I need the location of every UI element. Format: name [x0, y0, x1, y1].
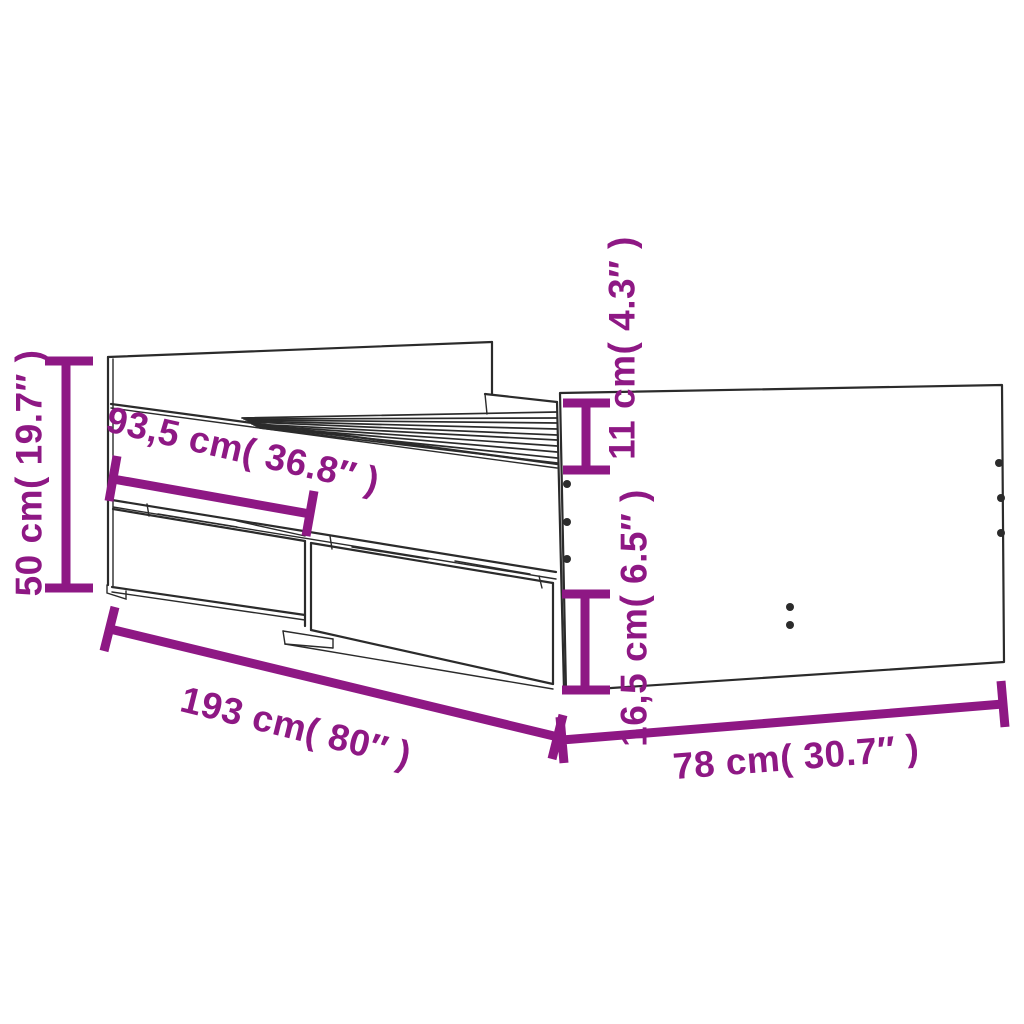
dimension-label-drawer-height: 16,5 cm( 6.5″ ): [614, 489, 655, 747]
screw-hole-dot: [786, 621, 794, 629]
bed-frame-drawing: [107, 342, 1005, 691]
bed-frame-diagram: 50 cm( 19.7″ ) 93,5 cm( 36.8″ ) 11 cm( 4…: [0, 0, 1024, 1024]
dimension-overall-length: 193 cm( 80″ ): [104, 607, 563, 775]
screw-hole-dot: [563, 518, 571, 526]
screw-hole-dot: [786, 603, 794, 611]
screw-hole-dot: [563, 480, 571, 488]
dimension-line-overall-height: [45, 361, 93, 588]
dimension-label-overall-height: 50 cm( 19.7″ ): [9, 350, 50, 597]
dimension-overall-height: 50 cm( 19.7″ ): [9, 350, 94, 597]
screw-hole-dot: [995, 459, 1003, 467]
drawer-front-2: [311, 543, 553, 684]
screw-hole-dot: [563, 555, 571, 563]
product-dimension-diagram: 50 cm( 19.7″ ) 93,5 cm( 36.8″ ) 11 cm( 4…: [0, 0, 1024, 1024]
dimension-label-overall-width: 78 cm( 30.7″ ): [671, 727, 920, 787]
drawer-rail-band: [112, 500, 556, 588]
screw-hole-dot: [997, 494, 1005, 502]
screw-hole-dot: [997, 529, 1005, 537]
dimension-label-side-rail-height: 11 cm( 4.3″ ): [602, 236, 643, 460]
